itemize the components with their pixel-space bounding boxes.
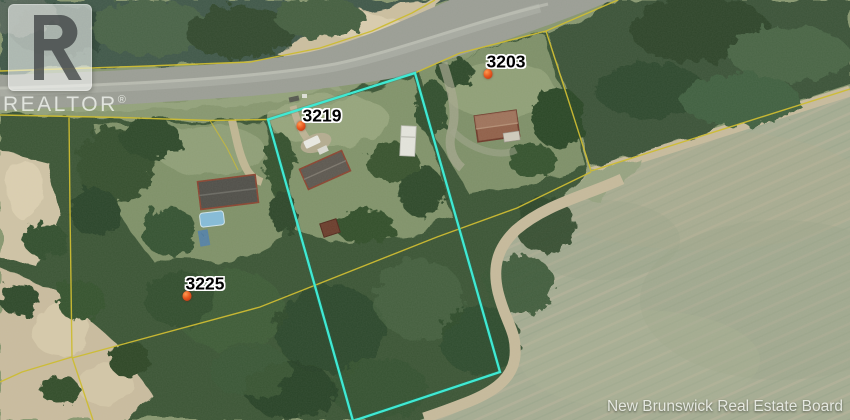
board-attribution: New Brunswick Real Estate Board (607, 398, 843, 416)
parcel-number-label: 3219 (303, 106, 342, 127)
listing-map-view: 320332193225 REALTOR® New Brunswick Real… (0, 0, 850, 420)
registered-trademark-symbol: ® (118, 94, 126, 106)
realtor-logo (8, 4, 92, 91)
parcel-number-label: 3203 (487, 52, 526, 73)
parcel-number-label: 3225 (186, 274, 225, 295)
realtor-wordmark: REALTOR® (3, 93, 118, 117)
realtor-logo-r-glyph (34, 15, 82, 80)
realtor-watermark: REALTOR® (8, 4, 118, 117)
parcel-annotations-layer: 320332193225 (0, 0, 850, 420)
